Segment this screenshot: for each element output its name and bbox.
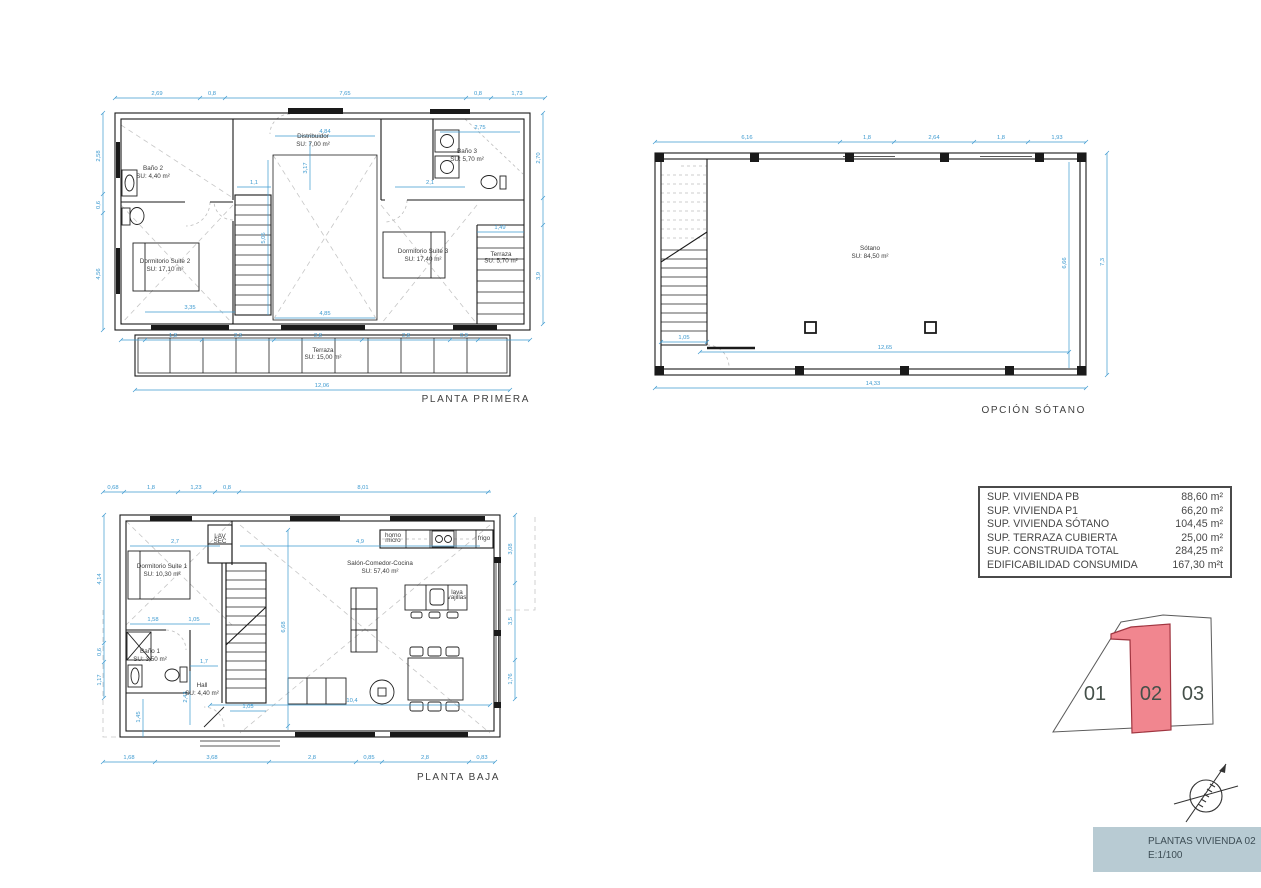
dimension-label: 14,33 bbox=[866, 381, 881, 387]
surface-areas-table: SUP. VIVIENDA PB88,60 m²SUP. VIVIENDA P1… bbox=[978, 486, 1232, 578]
area-label: SUP. CONSTRUIDA TOTAL bbox=[987, 545, 1175, 559]
table-row: SUP. CONSTRUIDA TOTAL284,25 m² bbox=[980, 545, 1230, 559]
dimension-label: 0,9 bbox=[460, 333, 468, 339]
dimension-label: 3,35 bbox=[184, 305, 195, 311]
room-label: Salón-Comedor-CocinaSU: 57,40 m² bbox=[347, 560, 413, 575]
dimension-label: 1,8 bbox=[169, 333, 177, 339]
area-value: 25,00 m² bbox=[1181, 532, 1223, 546]
dimension-label: 4,9 bbox=[356, 539, 364, 545]
dimension-label: 4,85 bbox=[319, 311, 330, 317]
room-label: hornomicro bbox=[385, 532, 402, 544]
unit-01-label: 01 bbox=[1084, 683, 1106, 705]
plot-unit-diagram: 01 02 03 bbox=[1043, 612, 1221, 740]
dimension-label: 1,8 bbox=[147, 485, 155, 491]
dimension-label: 0,6 bbox=[96, 201, 102, 209]
dimension-label: 3,5 bbox=[508, 617, 514, 625]
table-row: SUP. VIVIENDA PB88,60 m² bbox=[980, 491, 1230, 505]
walls bbox=[655, 153, 1086, 375]
table-row: SUP. TERRAZA CUBIERTA25,00 m² bbox=[980, 532, 1230, 546]
dimension-label: 1,7 bbox=[200, 659, 208, 665]
room-label: Baño 2SU: 4,40 m² bbox=[136, 165, 170, 180]
opcion-sotano-plan: 6,161,82,641,81,937,36,6612,6514,331,05 … bbox=[645, 130, 1125, 420]
dimension-label: 1,93 bbox=[1051, 135, 1062, 141]
dimension-label: 0,8 bbox=[208, 91, 216, 97]
dimension-label: 0,8 bbox=[474, 91, 482, 97]
room-label: Baño 3SU: 5,70 m² bbox=[450, 148, 484, 163]
dimension-label: 2,70 bbox=[536, 152, 542, 163]
area-label: SUP. VIVIENDA SÓTANO bbox=[987, 518, 1175, 532]
room-label: SótanoSU: 84,50 m² bbox=[851, 245, 888, 260]
dimension-label: 3,68 bbox=[206, 755, 217, 761]
room-label: Dormitorio Suite 2SU: 17,10 m² bbox=[140, 258, 191, 273]
dimension-label: 3,08 bbox=[508, 543, 514, 554]
table-row: SUP. VIVIENDA P166,20 m² bbox=[980, 505, 1230, 519]
dimension-label: 1,58 bbox=[147, 617, 158, 623]
door-swings bbox=[661, 166, 729, 367]
dimension-label: 7,65 bbox=[339, 91, 350, 97]
dimension-label: 3,9 bbox=[536, 272, 542, 280]
dimension-label: 1,05 bbox=[188, 617, 199, 623]
room-label: lavavajillas bbox=[448, 589, 467, 601]
furniture bbox=[127, 531, 467, 727]
plan-title-planta-baja: PLANTA BAJA bbox=[417, 772, 500, 783]
area-value: 104,45 m² bbox=[1175, 518, 1223, 532]
dimension-label: 12,06 bbox=[315, 383, 330, 389]
room-label: Dormitorio Suite 3SU: 17,40 m² bbox=[398, 248, 449, 263]
dimension-label: 2,58 bbox=[96, 150, 102, 161]
dimension-label: 0,83 bbox=[476, 755, 487, 761]
dimension-lines bbox=[101, 490, 517, 764]
dimension-label: 1,1 bbox=[250, 180, 258, 186]
dimension-label: 2,8 bbox=[402, 333, 410, 339]
dimension-label: 3,17 bbox=[303, 162, 309, 173]
planta-primera-plan: 2,690,87,650,81,732,580,64,562,703,91,82… bbox=[85, 80, 555, 415]
room-label: Baño 1SU: 3,50 m² bbox=[133, 648, 167, 663]
dimension-label: 4,14 bbox=[97, 573, 103, 585]
dimension-lines bbox=[653, 140, 1109, 390]
dimension-label: 1,73 bbox=[511, 91, 522, 97]
title-block: PLANTAS VIVIENDA 02 E:1/100 bbox=[1093, 827, 1261, 872]
wall-piers bbox=[655, 153, 1086, 375]
dimension-labels: 6,161,82,641,81,937,36,6612,6514,331,05 bbox=[678, 135, 1106, 387]
dimension-label: 1,49 bbox=[494, 225, 505, 231]
dimension-label: 2,8 bbox=[308, 755, 316, 761]
room-label: TerrazaSU: 15,00 m² bbox=[304, 347, 341, 361]
dimension-label: 2,75 bbox=[474, 125, 485, 131]
unit-03-label: 03 bbox=[1182, 683, 1204, 705]
dimension-label: 8,01 bbox=[357, 485, 368, 491]
dimension-label: 2,69 bbox=[151, 91, 162, 97]
area-label: EDIFICABILIDAD CONSUMIDA bbox=[987, 559, 1172, 573]
area-value: 167,30 m²t bbox=[1172, 559, 1223, 573]
room-label: DistribuidorSU: 7,00 m² bbox=[296, 133, 330, 148]
area-value: 66,20 m² bbox=[1181, 505, 1223, 519]
area-label: SUP. TERRAZA CUBIERTA bbox=[987, 532, 1181, 546]
plan-title-opcion-sotano: OPCIÓN SÓTANO bbox=[981, 403, 1086, 416]
dimension-label: 2,1 bbox=[426, 180, 434, 186]
area-value: 88,60 m² bbox=[1181, 491, 1223, 505]
dimension-label: 1,23 bbox=[190, 485, 201, 491]
dimension-label: 2,7 bbox=[171, 539, 179, 545]
dimension-label: 6,68 bbox=[281, 621, 287, 632]
room-label: frigo bbox=[478, 535, 491, 542]
area-label: SUP. VIVIENDA PB bbox=[987, 491, 1181, 505]
door-swings bbox=[186, 114, 523, 226]
dimension-label: 10,4 bbox=[346, 698, 358, 704]
dimension-label: 2,8 bbox=[421, 755, 429, 761]
dimension-label: 5,05 bbox=[261, 232, 267, 243]
area-value: 284,25 m² bbox=[1175, 545, 1223, 559]
dimension-label: 0,8 bbox=[223, 485, 231, 491]
dimension-label: 1,68 bbox=[123, 755, 134, 761]
dimension-label: 2,8 bbox=[314, 333, 322, 339]
dimension-label: 12,65 bbox=[878, 345, 893, 351]
dimension-label: 6,16 bbox=[741, 135, 752, 141]
dimension-label: 0,85 bbox=[363, 755, 374, 761]
walls bbox=[120, 515, 500, 746]
dimension-label: 4,56 bbox=[96, 268, 102, 279]
dimension-label: 1,8 bbox=[863, 135, 871, 141]
room-label: TerrazaSU: 5,70 m² bbox=[484, 251, 518, 264]
room-label: LAVSEC bbox=[214, 533, 227, 545]
room-label: Dormitorio Suite 1SU: 10,30 m² bbox=[137, 563, 188, 578]
dimension-label: 1,05 bbox=[242, 704, 253, 710]
dimension-label: 0,68 bbox=[107, 485, 118, 491]
plan-title-planta-primera: PLANTA PRIMERA bbox=[422, 394, 530, 405]
dimension-labels: 0,681,81,230,88,014,140,61,171,683,682,8… bbox=[97, 485, 514, 761]
room-labels: SótanoSU: 84,50 m² bbox=[851, 245, 888, 260]
door-swings bbox=[166, 539, 476, 727]
dimension-label: 7,3 bbox=[1100, 258, 1106, 266]
sheet-scale: E:1/100 bbox=[1148, 849, 1261, 863]
dimension-label: 1,8 bbox=[997, 135, 1005, 141]
dimension-label: 1,05 bbox=[678, 335, 689, 341]
dimension-label: 2,3 bbox=[234, 333, 242, 339]
dimension-label: 1,76 bbox=[508, 673, 514, 684]
sheet-title: PLANTAS VIVIENDA 02 bbox=[1148, 835, 1261, 849]
dimension-label: 0,6 bbox=[97, 648, 103, 656]
dimension-label: 2,64 bbox=[928, 135, 940, 141]
dimension-label: 6,66 bbox=[1062, 257, 1068, 268]
north-compass-icon bbox=[1168, 758, 1244, 828]
table-row: EDIFICABILIDAD CONSUMIDA167,30 m²t bbox=[980, 559, 1230, 573]
unit-02-label: 02 bbox=[1140, 683, 1162, 705]
table-row: SUP. VIVIENDA SÓTANO104,45 m² bbox=[980, 518, 1230, 532]
planta-baja-plan: 0,681,81,230,88,014,140,61,171,683,682,8… bbox=[90, 475, 570, 790]
area-label: SUP. VIVIENDA P1 bbox=[987, 505, 1181, 519]
dimension-label: 1,45 bbox=[136, 711, 142, 722]
dimension-label: 1,17 bbox=[97, 674, 103, 685]
